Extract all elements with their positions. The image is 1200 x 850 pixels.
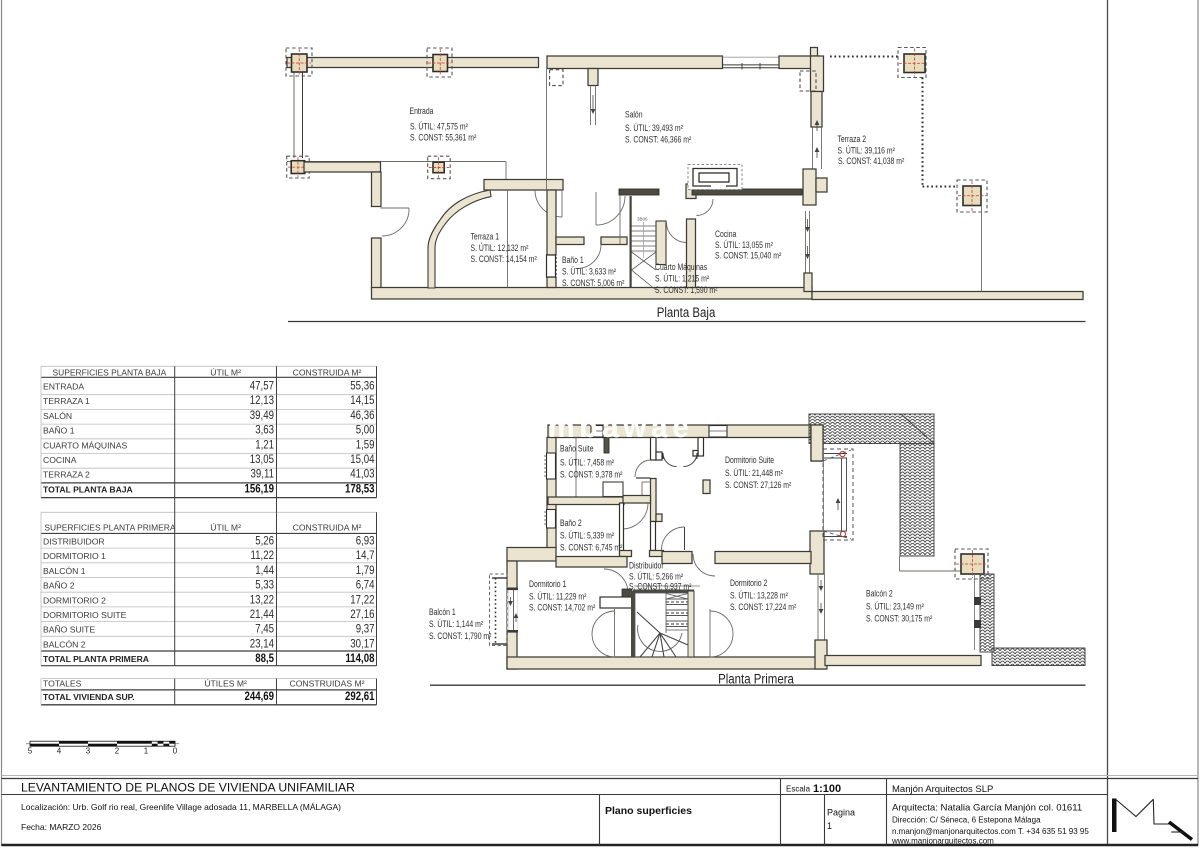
svg-text:13,05: 13,05 bbox=[250, 453, 274, 466]
svg-text:S. ÚTIL: 13,055 m²: S. ÚTIL: 13,055 m² bbox=[715, 240, 773, 250]
svg-text:47,57: 47,57 bbox=[250, 379, 274, 392]
svg-text:1:100: 1:100 bbox=[813, 783, 841, 795]
svg-text:9,37: 9,37 bbox=[356, 623, 375, 636]
svg-text:292,61: 292,61 bbox=[345, 690, 375, 703]
svg-text:Entrada: Entrada bbox=[410, 106, 435, 116]
svg-text:Pagina: Pagina bbox=[827, 808, 855, 818]
svg-text:DORMITORIO 1: DORMITORIO 1 bbox=[43, 551, 106, 561]
svg-text:S. CONST: 14,702 m²: S. CONST: 14,702 m² bbox=[529, 603, 596, 613]
svg-text:Baño 1: Baño 1 bbox=[562, 255, 584, 265]
svg-text:S. CONST: 1,590 m²: S. CONST: 1,590 m² bbox=[655, 285, 718, 295]
svg-text:S. CONST: 15,040 m²: S. CONST: 15,040 m² bbox=[715, 251, 782, 261]
svg-text:0: 0 bbox=[173, 747, 178, 756]
svg-text:Cuarto Máquinas: Cuarto Máquinas bbox=[655, 262, 707, 272]
svg-text:Planta Baja: Planta Baja bbox=[657, 305, 716, 320]
svg-text:17,22: 17,22 bbox=[350, 593, 374, 606]
svg-text:DISTRIBUIDOR: DISTRIBUIDOR bbox=[43, 537, 105, 547]
svg-text:S. ÚTIL: 5,266 m²: S. ÚTIL: 5,266 m² bbox=[629, 572, 683, 582]
svg-text:DORMITORIO SUITE: DORMITORIO SUITE bbox=[43, 610, 127, 620]
svg-text:S. CONST: 9,378 m²: S. CONST: 9,378 m² bbox=[560, 470, 623, 480]
svg-text:Escala: Escala bbox=[786, 785, 811, 794]
svg-text:BALCÓN 2: BALCÓN 2 bbox=[43, 639, 86, 649]
svg-text:S. CONST: 6,937 m²: S. CONST: 6,937 m² bbox=[629, 582, 692, 592]
svg-text:55,36: 55,36 bbox=[350, 379, 374, 392]
svg-text:S. CONST: 30,175 m²: S. CONST: 30,175 m² bbox=[866, 614, 933, 624]
svg-text:S. CONST: 55,361 m²: S. CONST: 55,361 m² bbox=[410, 132, 477, 142]
svg-text:SUPERFICIES PLANTA BAJA: SUPERFICIES PLANTA BAJA bbox=[53, 368, 167, 378]
svg-text:Dormitorio Suite: Dormitorio Suite bbox=[725, 455, 775, 465]
svg-text:BAÑO 2: BAÑO 2 bbox=[43, 581, 75, 591]
svg-text:Plano superficies: Plano superficies bbox=[605, 805, 692, 817]
svg-text:S. CONST: 46,366 m²: S. CONST: 46,366 m² bbox=[625, 135, 692, 145]
svg-text:S. ÚTIL: 11,229 m²: S. ÚTIL: 11,229 m² bbox=[529, 592, 587, 602]
svg-text:39,49: 39,49 bbox=[250, 409, 274, 422]
svg-text:S. CONST: 41,038 m²: S. CONST: 41,038 m² bbox=[838, 156, 905, 166]
svg-text:244,69: 244,69 bbox=[244, 690, 274, 703]
svg-text:3: 3 bbox=[86, 747, 91, 756]
svg-text:S. CONST: 5,006 m²: S. CONST: 5,006 m² bbox=[562, 278, 625, 288]
svg-text:TERRAZA 2: TERRAZA 2 bbox=[43, 470, 90, 480]
svg-text:Salón: Salón bbox=[625, 110, 643, 120]
svg-text:CONSTRUIDA M²: CONSTRUIDA M² bbox=[293, 368, 362, 378]
svg-text:Balcón 1: Balcón 1 bbox=[429, 607, 456, 617]
svg-text:S. ÚTIL: 39,116 m²: S. ÚTIL: 39,116 m² bbox=[838, 146, 896, 156]
svg-text:4: 4 bbox=[57, 747, 62, 756]
svg-text:Manjón Arquitectos SLP: Manjón Arquitectos SLP bbox=[892, 784, 993, 795]
svg-text:21,44: 21,44 bbox=[250, 608, 274, 621]
svg-text:88,5: 88,5 bbox=[255, 652, 274, 665]
svg-text:DORMITORIO 2: DORMITORIO 2 bbox=[43, 595, 106, 605]
svg-text:1: 1 bbox=[144, 747, 149, 756]
svg-text:11,22: 11,22 bbox=[251, 549, 274, 562]
svg-text:ÚTIL M²: ÚTIL M² bbox=[210, 522, 241, 532]
svg-text:S. ÚTIL: 5,339 m²: S. ÚTIL: 5,339 m² bbox=[560, 531, 614, 541]
svg-text:S. ÚTIL: 39,493 m²: S. ÚTIL: 39,493 m² bbox=[625, 123, 683, 133]
svg-text:46,36: 46,36 bbox=[350, 409, 374, 422]
svg-text:S. ÚTIL: 47,575 m²: S. ÚTIL: 47,575 m² bbox=[410, 122, 468, 132]
svg-text:S. ÚTIL: 3,633 m²: S. ÚTIL: 3,633 m² bbox=[562, 267, 616, 277]
svg-text:Fecha: MARZO 2026: Fecha: MARZO 2026 bbox=[21, 822, 102, 832]
svg-text:114,08: 114,08 bbox=[345, 652, 374, 665]
svg-text:30,17: 30,17 bbox=[350, 637, 374, 650]
svg-text:5,00: 5,00 bbox=[356, 424, 375, 437]
svg-text:41,03: 41,03 bbox=[350, 468, 374, 481]
svg-text:1,59: 1,59 bbox=[356, 438, 375, 451]
svg-text:S. CONST: 6,745 m²: S. CONST: 6,745 m² bbox=[560, 543, 623, 553]
svg-text:1,21: 1,21 bbox=[255, 438, 274, 451]
svg-text:1: 1 bbox=[827, 821, 832, 831]
svg-text:TOTAL PLANTA PRIMERA: TOTAL PLANTA PRIMERA bbox=[43, 654, 149, 664]
svg-text:Dirección: C/ Séneca, 6 Estepo: Dirección: C/ Séneca, 6 Estepona Málaga bbox=[892, 816, 1041, 825]
svg-text:mbawae: mbawae bbox=[548, 411, 693, 444]
svg-text:7,45: 7,45 bbox=[255, 623, 274, 636]
svg-text:156,19: 156,19 bbox=[244, 482, 274, 495]
svg-text:S. ÚTIL: 1,215 m²: S. ÚTIL: 1,215 m² bbox=[655, 274, 709, 284]
svg-text:1,44: 1,44 bbox=[255, 564, 274, 577]
svg-text:13,22: 13,22 bbox=[250, 593, 274, 606]
svg-text:2: 2 bbox=[115, 747, 120, 756]
svg-text:CUARTO MÁQUINAS: CUARTO MÁQUINAS bbox=[43, 440, 127, 450]
svg-text:S. ÚTIL: 12,132 m²: S. ÚTIL: 12,132 m² bbox=[471, 243, 529, 253]
svg-text:www.manjonarquitectos.com: www.manjonarquitectos.com bbox=[891, 837, 994, 846]
svg-text:5,33: 5,33 bbox=[255, 579, 274, 592]
svg-text:Dormitorio 2: Dormitorio 2 bbox=[730, 578, 767, 588]
svg-text:23,14: 23,14 bbox=[250, 637, 274, 650]
svg-text:COCINA: COCINA bbox=[43, 455, 77, 465]
svg-text:TOTALES: TOTALES bbox=[43, 679, 82, 689]
svg-text:S. ÚTIL: 1,144 m²: S. ÚTIL: 1,144 m² bbox=[429, 619, 483, 629]
svg-text:15,04: 15,04 bbox=[350, 453, 374, 466]
svg-text:ÚTILES M²: ÚTILES M² bbox=[204, 679, 247, 689]
svg-text:Arquitecta: Natalia García Man: Arquitecta: Natalia García Manjón col. 0… bbox=[892, 803, 1082, 814]
svg-text:Localización: Urb. Golf rio r: Localización: Urb. Golf rio real, Greenl… bbox=[21, 802, 341, 812]
svg-text:S. ÚTIL: 7,458 m²: S. ÚTIL: 7,458 m² bbox=[560, 458, 614, 468]
svg-text:Terraza 1: Terraza 1 bbox=[471, 232, 500, 242]
svg-text:TERRAZA 1: TERRAZA 1 bbox=[43, 396, 90, 406]
svg-text:S. ÚTIL: 21,448 m²: S. ÚTIL: 21,448 m² bbox=[725, 468, 783, 478]
svg-text:SALÓN: SALÓN bbox=[43, 411, 72, 421]
svg-text:178,53: 178,53 bbox=[345, 482, 375, 495]
svg-text:Distribuidor: Distribuidor bbox=[629, 561, 664, 571]
svg-text:Planta Primera: Planta Primera bbox=[718, 671, 794, 686]
svg-text:1,79: 1,79 bbox=[356, 564, 375, 577]
svg-text:6,93: 6,93 bbox=[356, 534, 375, 547]
svg-text:Dormitorio 1: Dormitorio 1 bbox=[529, 579, 566, 589]
svg-text:CONSTRUIDA M²: CONSTRUIDA M² bbox=[293, 522, 362, 532]
svg-text:ENTRADA: ENTRADA bbox=[43, 382, 84, 392]
svg-text:CONSTRUIDAS M²: CONSTRUIDAS M² bbox=[290, 679, 365, 689]
svg-text:BALCÓN 1: BALCÓN 1 bbox=[43, 566, 86, 576]
svg-text:ÚTIL M²: ÚTIL M² bbox=[210, 368, 241, 378]
svg-text:5: 5 bbox=[28, 747, 33, 756]
svg-text:5,26: 5,26 bbox=[255, 534, 274, 547]
svg-text:Baño Suite: Baño Suite bbox=[560, 444, 594, 454]
svg-text:3B06: 3B06 bbox=[637, 217, 648, 222]
svg-text:Baño 2: Baño 2 bbox=[560, 518, 582, 528]
svg-text:12,13: 12,13 bbox=[250, 394, 274, 407]
svg-text:6,74: 6,74 bbox=[356, 579, 375, 592]
svg-text:S. ÚTIL: 13,228 m²: S. ÚTIL: 13,228 m² bbox=[730, 591, 788, 601]
svg-text:LEVANTAMIENTO DE PLANOS DE VIV: LEVANTAMIENTO DE PLANOS DE VIVIENDA UNIF… bbox=[21, 781, 355, 795]
svg-text:S. CONST: 14,154 m²: S. CONST: 14,154 m² bbox=[471, 254, 538, 264]
svg-text:n.manjon@manjonarquitectos.com: n.manjon@manjonarquitectos.com T. +34 63… bbox=[892, 827, 1089, 836]
svg-text:S. CONST: 17,224 m²: S. CONST: 17,224 m² bbox=[730, 602, 797, 612]
svg-text:14,7: 14,7 bbox=[356, 549, 375, 562]
svg-text:27,16: 27,16 bbox=[350, 608, 374, 621]
svg-text:SUPERFICIES PLANTA PRIMERA: SUPERFICIES PLANTA PRIMERA bbox=[44, 522, 175, 532]
svg-text:BAÑO SUITE: BAÑO SUITE bbox=[43, 625, 95, 635]
svg-text:S. CONST: 1,790 m²: S. CONST: 1,790 m² bbox=[429, 631, 492, 641]
svg-text:3,63: 3,63 bbox=[255, 424, 274, 437]
svg-text:TOTAL VIVIENDA SUP.: TOTAL VIVIENDA SUP. bbox=[43, 692, 135, 702]
svg-text:BAÑO 1: BAÑO 1 bbox=[43, 426, 75, 436]
svg-text:39,11: 39,11 bbox=[251, 468, 274, 481]
svg-text:Balcón 2: Balcón 2 bbox=[866, 589, 893, 599]
svg-text:Cocina: Cocina bbox=[715, 229, 737, 239]
svg-text:Terraza 2: Terraza 2 bbox=[838, 134, 867, 144]
svg-text:S. ÚTIL: 23,149 m²: S. ÚTIL: 23,149 m² bbox=[866, 602, 924, 612]
svg-text:TOTAL PLANTA BAJA: TOTAL PLANTA BAJA bbox=[43, 484, 133, 494]
svg-text:S. CONST: 27,126 m²: S. CONST: 27,126 m² bbox=[725, 480, 792, 490]
svg-text:14,15: 14,15 bbox=[350, 394, 374, 407]
